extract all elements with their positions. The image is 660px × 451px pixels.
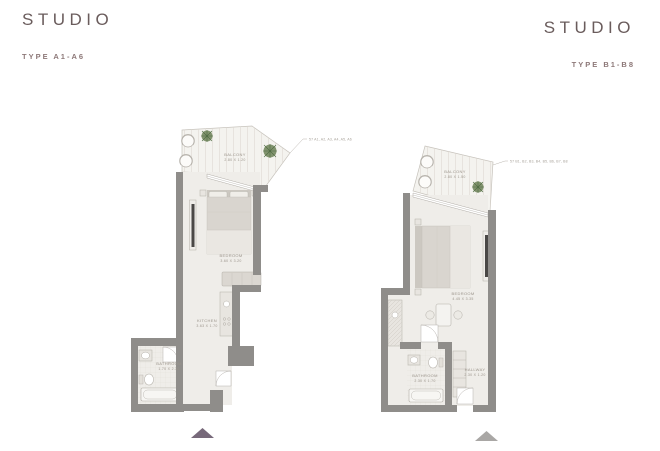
kitchen-counter (388, 300, 402, 346)
hallway-label: HALLWAY (465, 367, 486, 372)
entry-arrow-icon (475, 431, 498, 441)
hallway-dims: 2.30 X 1.20 (464, 373, 485, 377)
entry-door-swing (457, 388, 473, 404)
kitchen-label: KITCHEN (197, 318, 217, 323)
balcony-label: BALCONY (224, 152, 246, 157)
sink-icon (392, 312, 398, 318)
callout-leader (290, 139, 307, 153)
tv-icon (485, 235, 488, 277)
balcony-dims: 2.80 X 1.20 (224, 158, 245, 162)
nightstand (415, 289, 421, 295)
entry-arrow-icon (191, 428, 214, 438)
dining-chair (454, 311, 462, 319)
plan-type-b: TYPE B1-B8 (544, 60, 635, 69)
plant-icon (201, 130, 213, 142)
toilet-icon (139, 374, 154, 385)
toilet-icon (429, 357, 444, 368)
nightstand (415, 219, 421, 225)
blanket (450, 226, 470, 288)
bedroom-label: BEDROOM (219, 253, 242, 258)
balcony-dims: 2.80 X 1.50 (444, 175, 465, 179)
entry-door-swing (216, 371, 231, 386)
lounge-chair-icon (180, 154, 193, 167)
header-right: STUDIO TYPE B1-B8 (544, 18, 635, 69)
plant-icon (263, 144, 277, 158)
bed (415, 219, 470, 295)
bedroom-label: BEDROOM (451, 291, 474, 296)
header-left: STUDIO TYPE A1-A6 (22, 10, 113, 61)
lounge-chair-icon (182, 134, 195, 147)
bathroom-door-swing (163, 347, 178, 362)
plan-type-a: TYPE A1-A6 (22, 52, 113, 61)
blanket (207, 230, 251, 254)
floor-plan-type-b: BALCONY 2.80 X 1.50 57 B1, B2, B3, B4, B… (375, 125, 605, 445)
floor-plan-sheet: STUDIO TYPE A1-A6 STUDIO TYPE B1-B8 (0, 0, 660, 451)
plant-icon (472, 181, 484, 193)
headboard (415, 226, 422, 288)
unit-callout-b: 57 B1, B2, B3, B4, B5, B6, B7, B8 (510, 159, 568, 163)
bathtub (409, 389, 443, 402)
plan-title-a: STUDIO (22, 10, 113, 30)
bathtub (141, 388, 179, 401)
dining-table (436, 304, 451, 326)
bed (200, 190, 258, 254)
kitchen-dims: 3.63 X 1.70 (196, 324, 217, 328)
lounge-chair-icon (419, 175, 432, 188)
bathroom-label: BATHROOM (412, 373, 438, 378)
kitchen-counter (220, 292, 233, 336)
unit-callout-a: 57 A1, A2, A3, A4, A5, A6 (309, 137, 352, 141)
nightstand (200, 190, 206, 196)
bathroom-dims: 1.70 X 2.30 (158, 367, 179, 371)
lounge-chair-icon (421, 155, 434, 168)
tv-icon (192, 204, 195, 247)
bathroom-door-swing (421, 325, 438, 342)
sink-icon (224, 301, 230, 307)
plan-title-b: STUDIO (544, 18, 635, 38)
dining-chair (426, 311, 434, 319)
washbasin (408, 355, 420, 365)
bedroom-dims: 4.45 X 3.35 (452, 297, 473, 301)
callout-leader (493, 161, 508, 165)
bedroom-dims: 3.60 X 3.20 (220, 259, 241, 263)
bathroom-dims: 2.30 X 1.70 (414, 379, 435, 383)
washbasin (139, 350, 152, 361)
balcony-label: BALCONY (444, 169, 466, 174)
floor-plan-type-a: BALCONY 2.80 X 1.20 57 A1, A2, A3, A4, A… (125, 112, 355, 442)
bathroom-label: BATHROOM (156, 361, 182, 366)
